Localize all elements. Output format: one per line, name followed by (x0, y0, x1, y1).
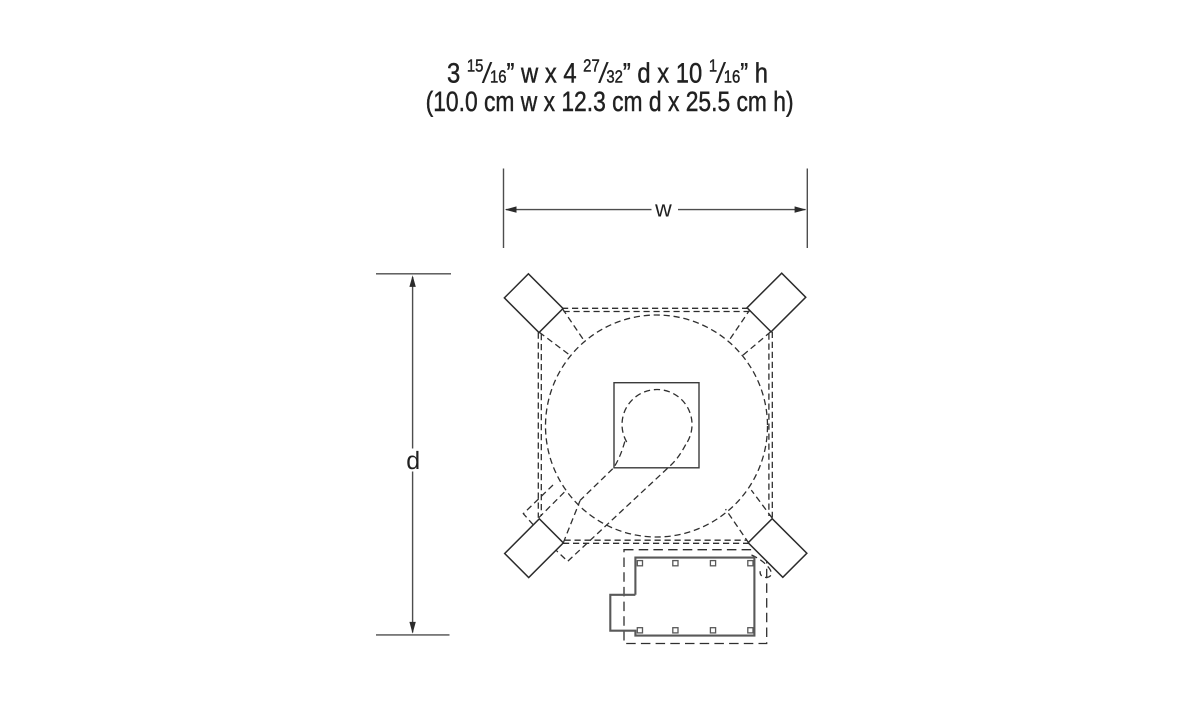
svg-text:(10.0 cm w x 12.3 cm d x 25.5: (10.0 cm w x 12.3 cm d x 25.5 cm h) (426, 86, 794, 117)
svg-text:d: d (406, 447, 420, 475)
svg-text:w: w (654, 196, 672, 222)
